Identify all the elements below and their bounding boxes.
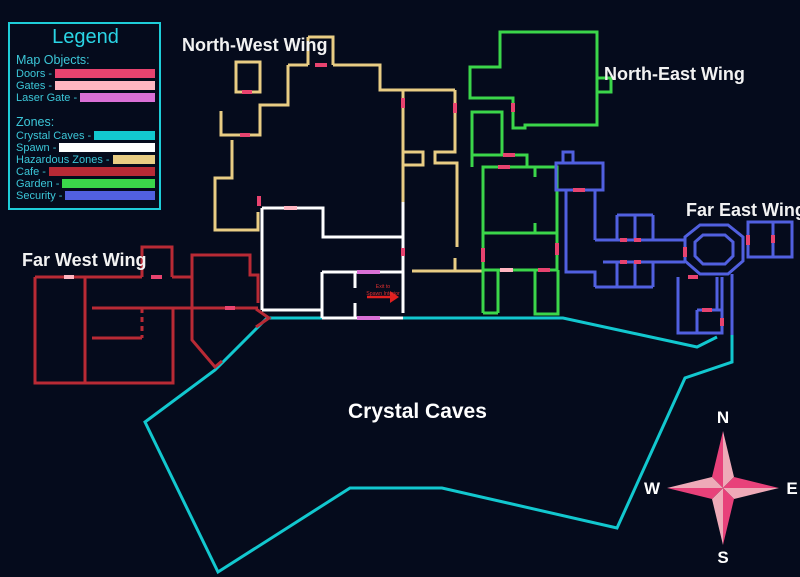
legend-item-hazardous-zones: Hazardous Zones - <box>16 154 155 165</box>
legend-item-garden: Garden - <box>16 178 155 189</box>
compass-south-label: S <box>717 548 728 567</box>
doors-markers <box>151 65 773 326</box>
compass-east-label: E <box>786 479 797 498</box>
legend-item-crystal-caves: Crystal Caves - <box>16 130 155 141</box>
legend-item-security: Security - <box>16 190 155 201</box>
compass-west-label: W <box>644 479 661 498</box>
label-north-east-wing: North-East Wing <box>604 64 745 84</box>
legend-item-cafe: Cafe - <box>16 166 155 177</box>
door-gate-markers <box>64 65 773 326</box>
compass-north-label: N <box>717 408 729 427</box>
gates-swatch <box>55 81 155 90</box>
laser-gate-swatch <box>80 93 155 102</box>
legend-header-zones: Zones: <box>16 115 155 129</box>
legend-item-doors: Doors - <box>16 68 155 79</box>
security-swatch <box>65 191 155 200</box>
compass-rose-icon <box>667 431 779 545</box>
legend-panel: Legend Map Objects: Doors - Gates - Lase… <box>8 22 161 210</box>
legend-item-spawn: Spawn - <box>16 142 155 153</box>
cafe-swatch <box>49 167 155 176</box>
hazardous-zones-swatch <box>113 155 155 164</box>
spawn-note-line1: Exit to <box>376 284 391 290</box>
garden-swatch <box>62 179 155 188</box>
crystal-caves-walls <box>145 318 732 572</box>
security-walls <box>556 152 792 335</box>
label-far-east-wing: Far East Wing <box>686 200 800 220</box>
crystal-caves-swatch <box>94 131 155 140</box>
label-north-west-wing: North-West Wing <box>182 35 328 55</box>
legend-title: Legend <box>16 26 155 49</box>
legend-header-map-objects: Map Objects: <box>16 53 155 67</box>
spawn-walls <box>262 202 403 318</box>
spawn-note-line2: Spawn Interior <box>366 291 400 297</box>
doors-swatch <box>55 69 155 78</box>
spawn-swatch <box>59 143 155 152</box>
legend-item-laser-gate: Laser Gate - <box>16 92 155 103</box>
legend-item-gates: Gates - <box>16 80 155 91</box>
game-map: North-West Wing North-East Wing Far East… <box>0 0 800 577</box>
label-far-west-wing: Far West Wing <box>22 250 147 270</box>
label-crystal-caves: Crystal Caves <box>348 400 487 423</box>
